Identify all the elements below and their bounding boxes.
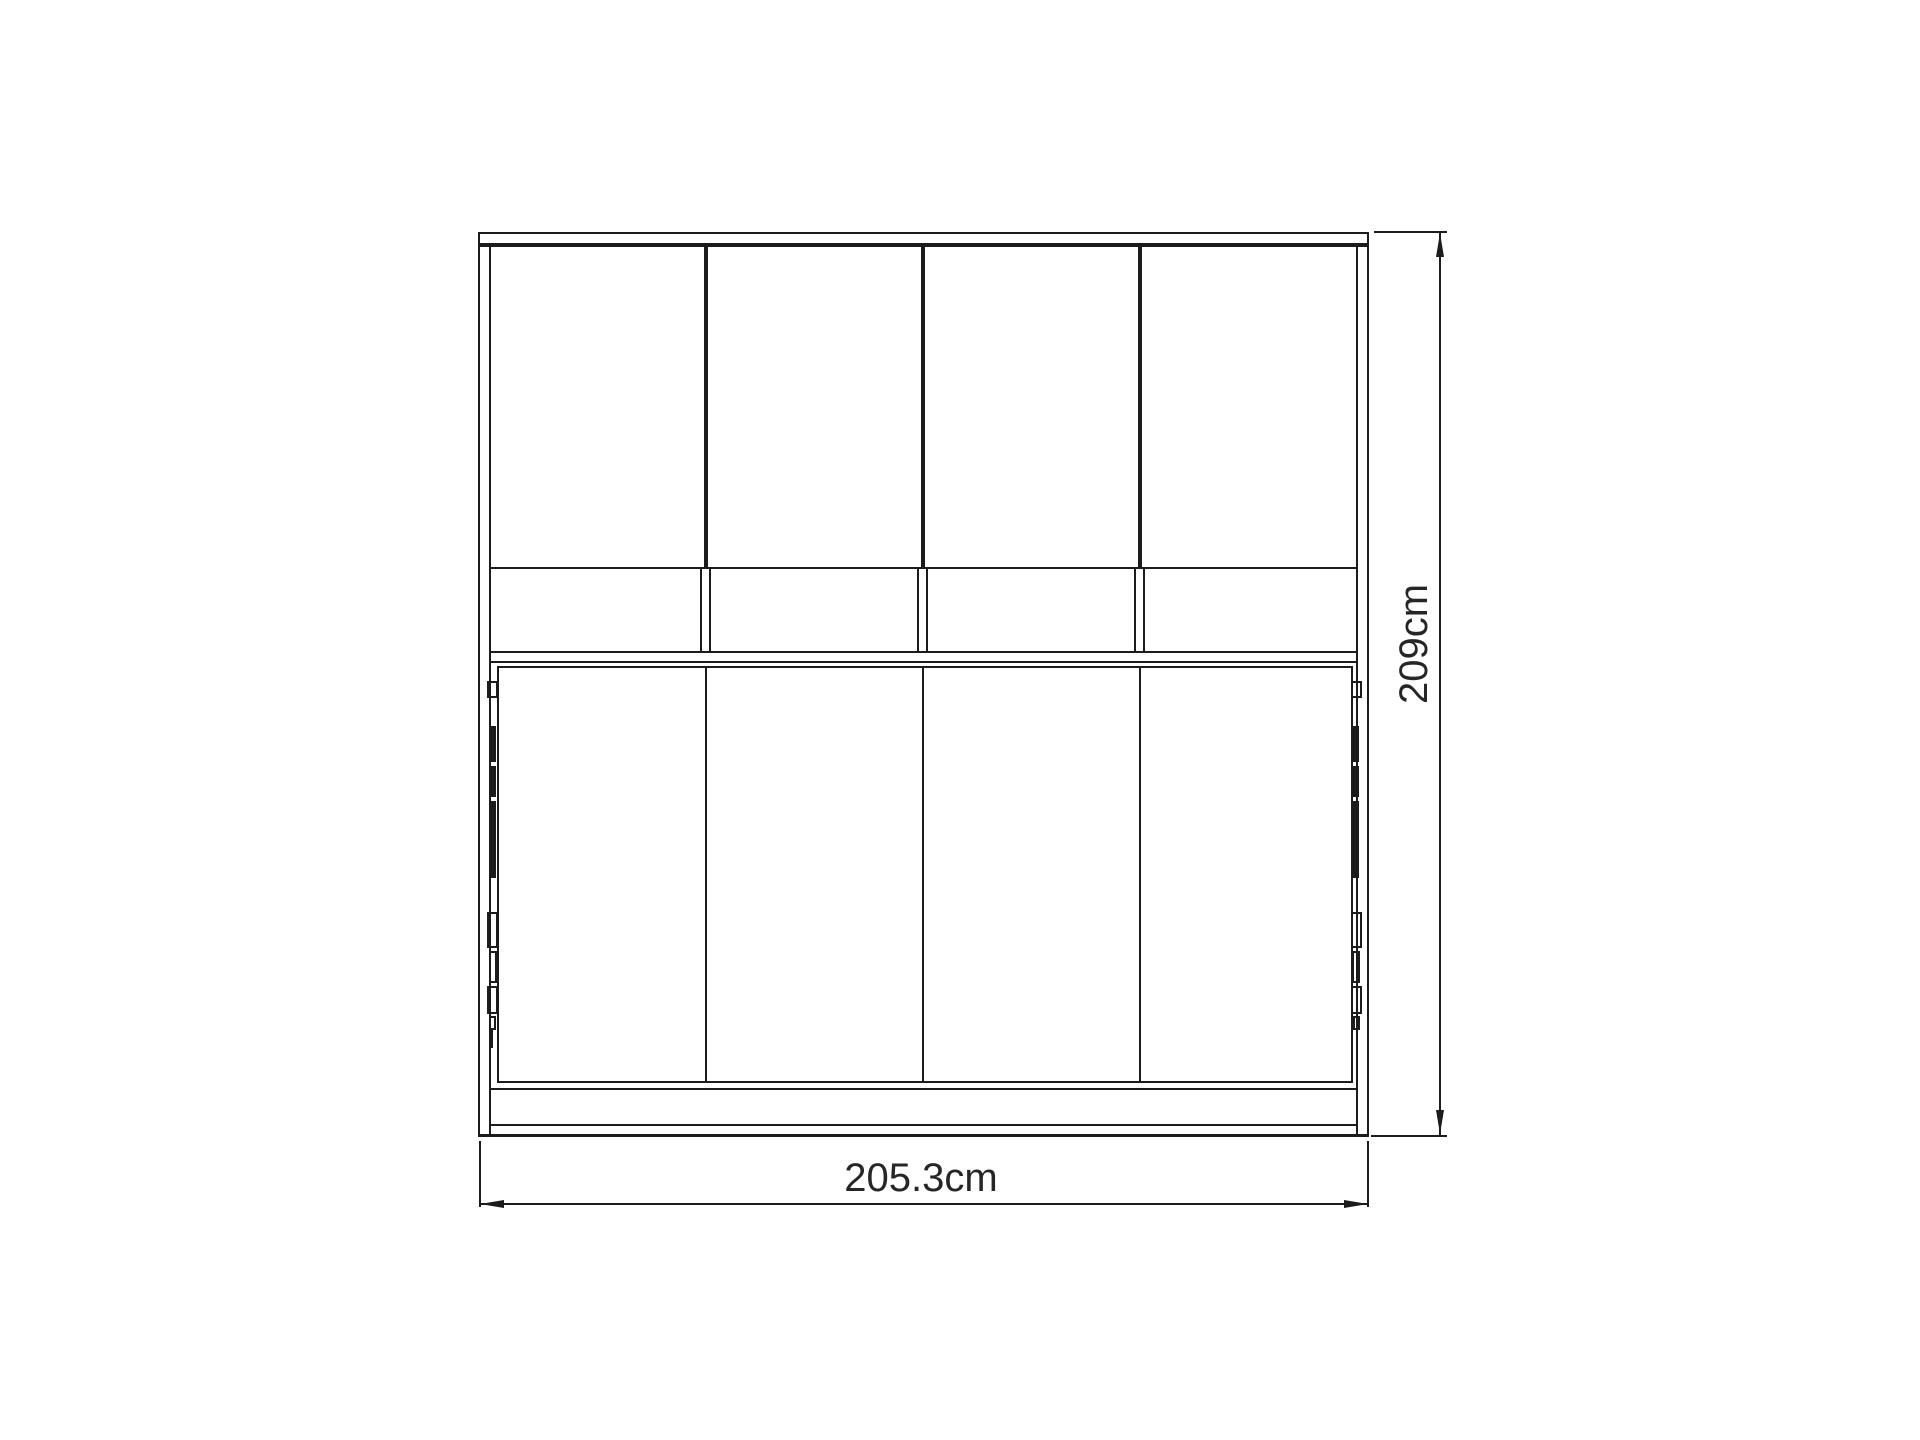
right-latch <box>1351 681 1362 698</box>
base-top-line <box>491 1088 1356 1090</box>
width-dim-arrow-left <box>480 1200 504 1208</box>
width-dim-label: 205.3cm <box>844 1156 997 1200</box>
left-lift-bracket <box>487 986 498 1014</box>
right-lift-bracket <box>1353 1016 1360 1030</box>
left-lift-bracket <box>489 951 497 983</box>
left-lift-stem <box>491 1030 493 1048</box>
height-dim-arrow-bottom <box>1436 1110 1444 1134</box>
height-dim-arrow-top <box>1436 233 1444 257</box>
left-lift-bracket <box>487 912 498 948</box>
flap-gap-line <box>1134 569 1136 651</box>
door-divider <box>704 247 708 567</box>
elevation-drawing: 209cm 205.3cm <box>0 0 1920 1440</box>
right-hinge-bar <box>1353 766 1359 797</box>
height-dim-label: 209cm <box>1392 584 1436 704</box>
bed-panel-divider <box>1139 668 1141 1081</box>
door-divider <box>1138 247 1142 567</box>
width-dim-extension-left <box>479 1141 481 1207</box>
width-dim-line <box>480 1203 1368 1205</box>
left-hinge-bar <box>490 726 496 762</box>
left-hinge-bar <box>490 801 496 878</box>
right-lift-stem <box>1356 1030 1358 1048</box>
flap-bottom-rail <box>491 651 1356 653</box>
flap-gap-line <box>917 569 919 651</box>
left-latch <box>487 681 498 698</box>
shelf-band-line <box>491 661 1356 663</box>
bed-panel-divider <box>922 668 924 1081</box>
flap-gap-line <box>709 569 711 651</box>
flap-gap-line <box>1143 569 1145 651</box>
bed-panel-divider <box>705 668 707 1081</box>
flap-gap-line <box>700 569 702 651</box>
door-bottom-rail <box>491 567 1356 569</box>
width-dim-arrow-right <box>1344 1200 1368 1208</box>
right-lift-bracket <box>1351 912 1362 948</box>
bed-front-panel <box>497 666 1353 1083</box>
left-lift-bracket <box>489 1016 496 1030</box>
base-mid-line <box>491 1124 1356 1126</box>
flap-gap-line <box>926 569 928 651</box>
right-hinge-bar <box>1353 801 1359 878</box>
height-dim-extension-bottom <box>1371 1135 1447 1137</box>
right-hinge-bar <box>1353 726 1359 762</box>
left-hinge-bar <box>490 766 496 797</box>
height-dim-line <box>1439 232 1441 1135</box>
door-divider <box>921 247 925 567</box>
right-lift-bracket <box>1351 986 1362 1014</box>
right-lift-bracket <box>1352 951 1360 983</box>
width-dim-extension-right <box>1367 1141 1369 1207</box>
